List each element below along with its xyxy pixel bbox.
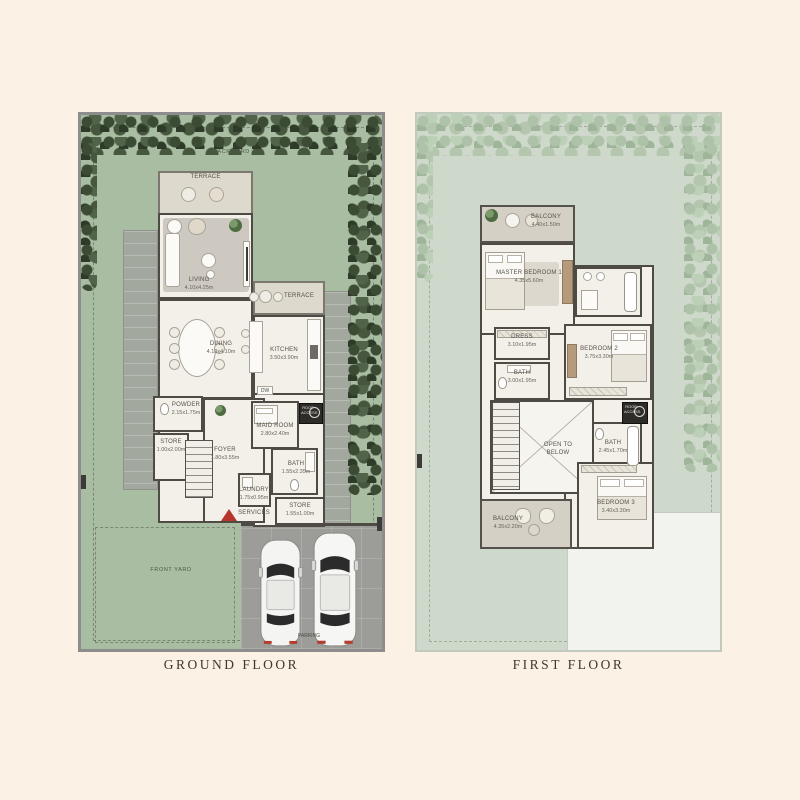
- pillow-icon: [630, 333, 644, 341]
- toilet-icon: [498, 377, 507, 389]
- plant-icon: [229, 219, 242, 232]
- shower-icon: [581, 290, 598, 310]
- dining-chair-icon: [214, 327, 225, 338]
- side-table-icon: [206, 270, 215, 279]
- staircase: [492, 402, 520, 490]
- maid-bed-icon: [254, 405, 278, 424]
- car-suv-icon: [308, 531, 362, 648]
- hedge-top: [81, 115, 382, 155]
- wardrobe-icon: [562, 260, 573, 304]
- desk-icon: [567, 344, 577, 378]
- wardrobe-icon: [497, 330, 547, 338]
- toilet-icon: [290, 479, 299, 491]
- front-yard-dashed: [95, 527, 235, 643]
- blanket-icon: [598, 496, 646, 519]
- stove-icon: [310, 345, 318, 359]
- terrace-chair-icon: [273, 292, 283, 302]
- pillow-icon: [613, 333, 627, 341]
- terrace-chair-icon: [249, 292, 259, 302]
- terrace-table-icon: [259, 290, 272, 303]
- roof-access-hatch: ROOF ACCESS: [299, 403, 323, 424]
- bedroom-2-bed-icon: [611, 330, 647, 382]
- coffee-table-icon: [201, 253, 216, 268]
- hedge-left-pale: [417, 142, 433, 282]
- hedge-right: [348, 143, 382, 495]
- plant-icon: [485, 209, 498, 222]
- powder-room: [153, 396, 203, 432]
- pillow-icon: [507, 255, 523, 263]
- balcony-table-icon: [528, 524, 540, 536]
- ground-floor-plan: ROOF ACCESS BACK YARD FRONT YARD TERRACE…: [78, 112, 385, 652]
- tv-icon: [246, 247, 248, 281]
- kitchen-island-icon: [249, 321, 263, 373]
- blanket-icon: [486, 278, 524, 309]
- wardrobe-icon: [581, 465, 637, 473]
- fan-chair-icon: [188, 218, 206, 235]
- plant-icon: [215, 405, 226, 416]
- hedge-right-pale: [684, 142, 720, 472]
- dining-chair-icon: [214, 359, 225, 370]
- pillow-icon: [256, 408, 274, 414]
- sink-icon: [583, 272, 592, 281]
- master-bed-icon: [485, 252, 525, 310]
- hatch-ring-icon: [309, 407, 320, 418]
- entrance-arrow-icon: [221, 509, 237, 521]
- dining-chair-icon: [169, 359, 180, 370]
- armchair-icon: [167, 219, 182, 234]
- pillow-icon: [600, 479, 620, 487]
- bedroom-3-bed-icon: [597, 476, 647, 520]
- vanity-icon: [507, 365, 531, 373]
- bathtub-icon: [627, 426, 639, 466]
- first-floor-caption: FIRST FLOOR: [415, 657, 722, 673]
- dining-chair-icon: [169, 327, 180, 338]
- wall-stub: [377, 517, 382, 531]
- balcony-bottom: [480, 499, 572, 549]
- ground-floor-caption: GROUND FLOOR: [78, 657, 385, 673]
- hatch-ring-icon: [634, 406, 645, 417]
- pillow-icon: [488, 255, 504, 263]
- stool-icon: [241, 345, 250, 354]
- balcony-chair-icon: [515, 508, 531, 524]
- roof-access-hatch: ROOF ACCESS: [622, 402, 648, 424]
- wall-stub: [81, 475, 86, 489]
- vanity-icon: [305, 452, 315, 472]
- sink-icon: [596, 272, 605, 281]
- terrace-chair-icon: [209, 187, 224, 202]
- first-floor-plan: ROOF ACCESS BALCONY4.40x1.50m MASTER BED…: [415, 112, 722, 652]
- balcony-chair-icon: [505, 213, 520, 228]
- toilet-icon: [595, 428, 604, 440]
- hedge-left: [81, 143, 97, 291]
- wardrobe-icon: [569, 387, 627, 396]
- terrace-top: [158, 171, 253, 215]
- bathtub-icon: [624, 272, 637, 312]
- wall-stub: [417, 454, 422, 468]
- store-room-2: [275, 497, 325, 525]
- staircase: [185, 440, 213, 498]
- car-sedan-icon: [258, 538, 303, 648]
- washer-icon: [242, 477, 253, 488]
- terrace-chair-icon: [181, 187, 196, 202]
- dining-chair-icon: [214, 343, 225, 354]
- store-room-1: [153, 433, 189, 481]
- sofa-icon: [165, 233, 180, 287]
- dining-table-icon: [178, 319, 216, 377]
- dishwasher-icon: [257, 386, 273, 395]
- hedge-top-pale: [417, 114, 722, 156]
- pillow-icon: [624, 479, 644, 487]
- toilet-icon: [160, 403, 169, 415]
- stool-icon: [241, 329, 250, 338]
- blanket-icon: [612, 354, 646, 382]
- dining-chair-icon: [169, 343, 180, 354]
- balcony-chair-icon: [525, 214, 538, 227]
